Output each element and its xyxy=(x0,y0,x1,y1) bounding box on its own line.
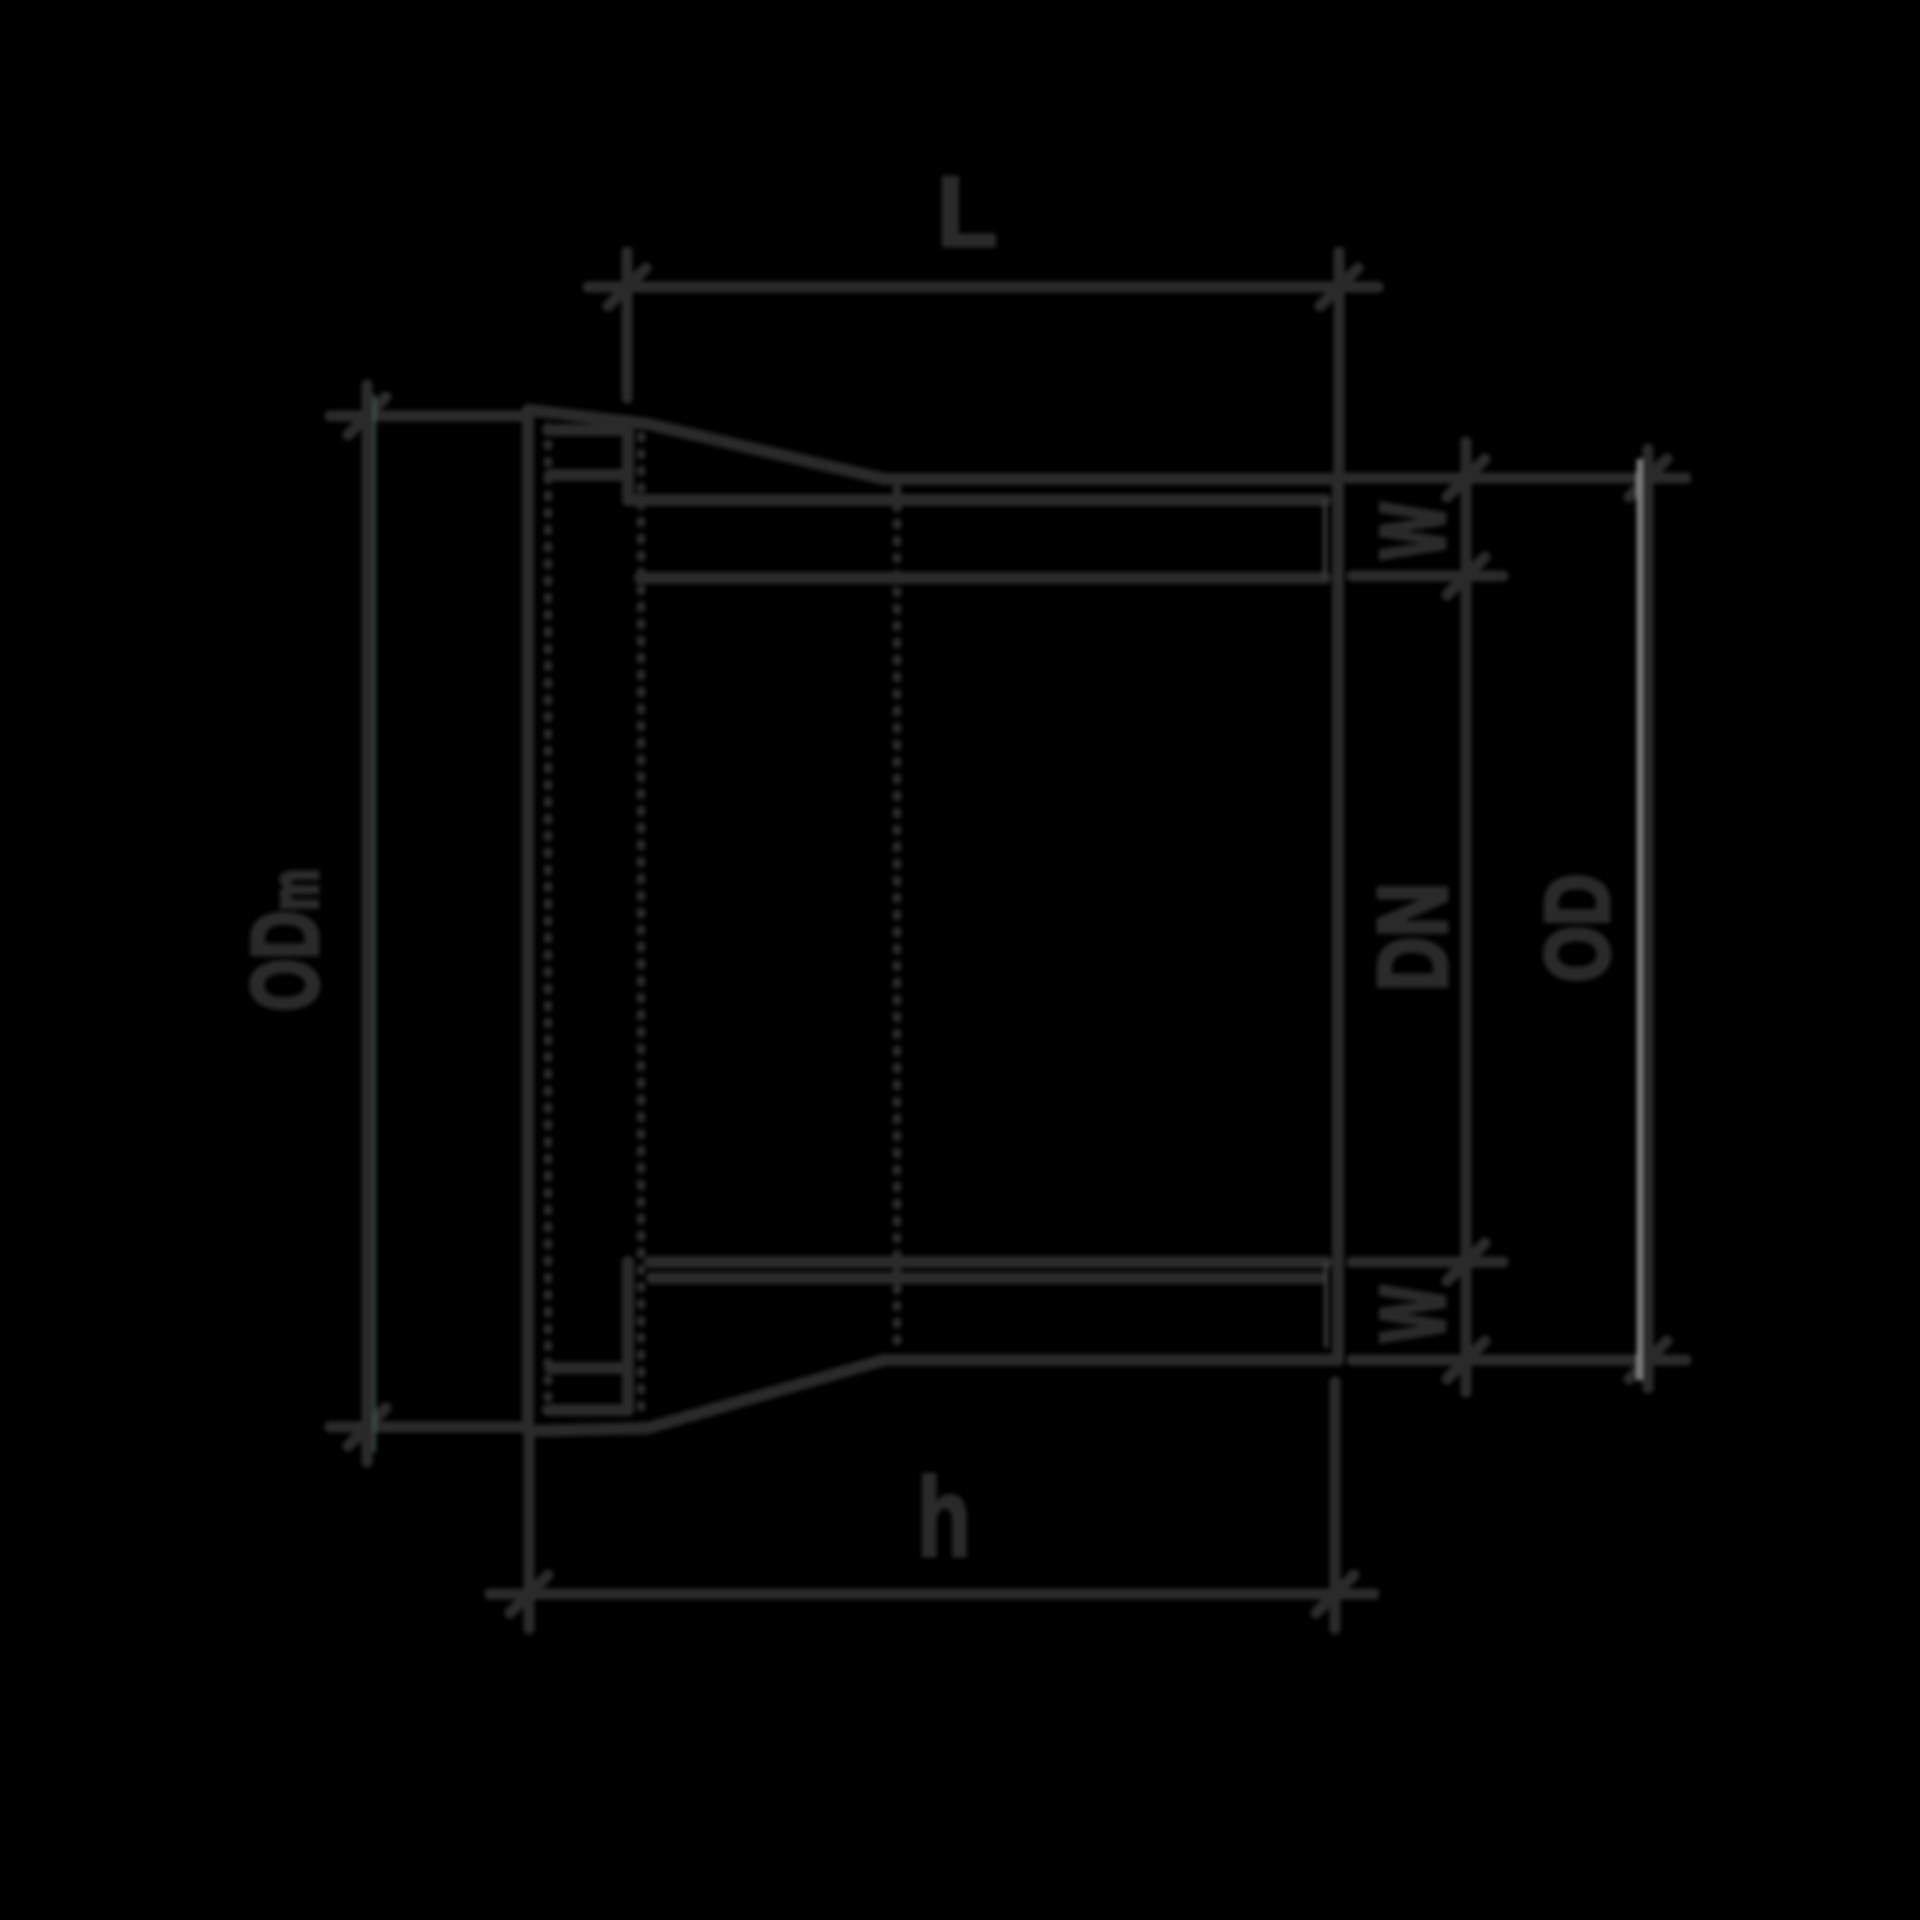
svg-text:h: h xyxy=(917,1455,971,1580)
svg-text:ODm: ODm xyxy=(232,869,337,1011)
svg-text:W: W xyxy=(1363,503,1464,559)
svg-text:DN: DN xyxy=(1358,883,1467,991)
svg-text:L: L xyxy=(936,156,997,268)
svg-text:OD: OD xyxy=(1528,874,1628,982)
svg-text:W: W xyxy=(1363,1286,1464,1342)
